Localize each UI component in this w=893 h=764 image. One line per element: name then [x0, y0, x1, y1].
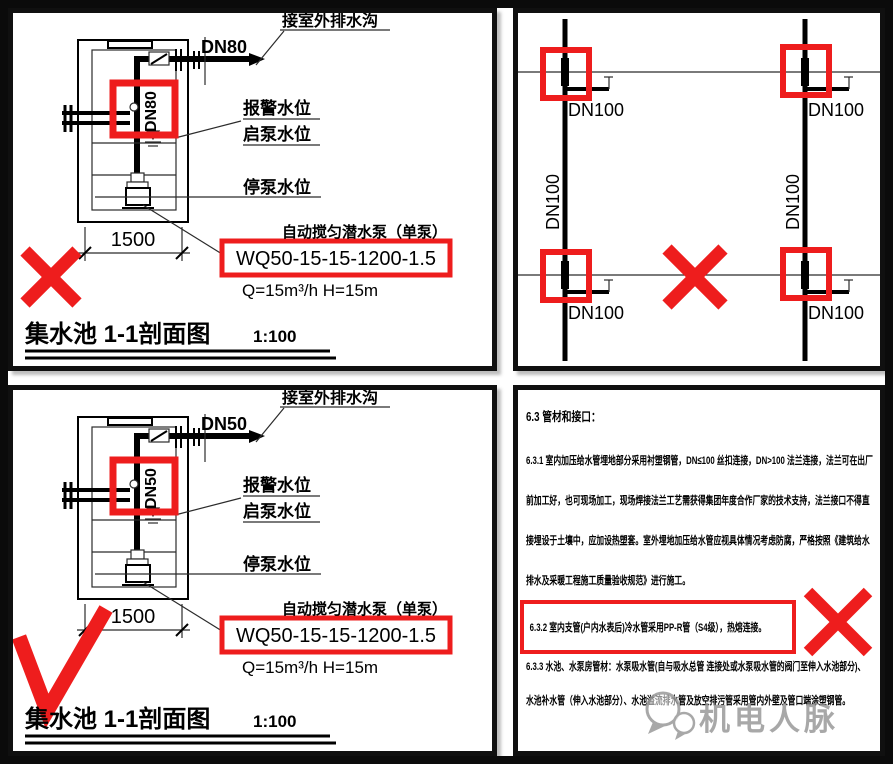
- panel-notes: 6.3 管材和接口： 6.3.1 室内加压给水管埋地部分采用衬塑钢管，DN≤10…: [513, 385, 885, 756]
- pipe-dn-label: DN80: [201, 37, 247, 57]
- highlight-box-note-632: 6.3.2 室内支管(户内水表后)冷水管采用PP-R管（S4级），热熔连接。: [520, 600, 796, 654]
- pump-caption: 自动搅匀潜水泵（单泵）: [282, 600, 447, 618]
- panel-section-dn80-wrong: 接室外排水沟 DN80 DN80 报警水位 启泵水位 停泵水位 自动搅匀潜水泵（…: [8, 8, 497, 371]
- dimension-value: 1500: [111, 229, 156, 251]
- drawing-title: 集水池 1-1剖面图: [24, 320, 210, 348]
- section-drawing-dn80: 接室外排水沟 DN80 DN80 报警水位 启泵水位 停泵水位 自动搅匀潜水泵（…: [13, 13, 492, 366]
- manhole-hatch: [108, 41, 152, 48]
- x-mark-icon: [800, 584, 876, 660]
- note-line-633a: 6.3.3 水池、水泵房管材：水泵吸水管(自与吸水总管 连接处或水泵吸水管的阀门…: [526, 658, 865, 674]
- dn100-label-top-left: DN100: [568, 100, 624, 120]
- watermark-text: 机电人脉: [699, 702, 839, 737]
- drain-label: 接室外排水沟: [282, 390, 378, 407]
- pump-duty: Q=15m³/h H=15m: [242, 658, 378, 677]
- stop-level-label: 停泵水位: [243, 177, 311, 197]
- plan-drawing-dn100: DN100 DN100 DN100 DN100 DN100 DN100: [518, 13, 880, 366]
- leader-levels: [175, 121, 241, 138]
- alarm-level-label: 报警水位: [243, 98, 311, 118]
- start-level-label: 启泵水位: [243, 124, 311, 144]
- check-mark-icon: [19, 609, 106, 711]
- x-mark-icon: [667, 249, 723, 305]
- start-level-label: 启泵水位: [243, 501, 311, 521]
- riser-dn-label: DN80: [143, 91, 160, 132]
- note-line-632: 6.3.2 室内支管(户内水表后)冷水管采用PP-R管（S4级），热熔连接。: [524, 619, 766, 635]
- manhole-hatch: [108, 418, 152, 425]
- note-line-631c: 接埋设于土壤中，应加设热塑套。室外埋地加压给水管应视具体情况考虑防腐，严格按照《…: [526, 532, 870, 548]
- pump-caption: 自动搅匀潜水泵（单泵）: [282, 223, 447, 241]
- panel-plan-dn100-wrong: DN100 DN100 DN100 DN100 DN100 DN100: [513, 8, 885, 371]
- note-line-631a: 6.3.1 室内加压给水管埋地部分采用衬塑钢管，DN≤100 丝扣连接，DN>1…: [526, 452, 873, 468]
- leader-drain: [256, 31, 284, 65]
- pipe-dn-label: DN50: [201, 414, 247, 434]
- note-line-631d: 排水及采暖工程施工质量验收规范》进行施工。: [526, 572, 690, 588]
- tank-linework: [25, 407, 390, 743]
- dn100-label-bottom-right: DN100: [808, 303, 864, 323]
- tank-linework: [25, 30, 390, 358]
- drawing-title: 集水池 1-1剖面图: [24, 705, 210, 733]
- pump-model: WQ50-15-15-1200-1.5: [236, 625, 436, 647]
- drawing-scale: 1:100: [253, 327, 296, 346]
- dn100-label-bottom-left: DN100: [568, 303, 624, 323]
- riser-dn-label: DN50: [143, 468, 160, 509]
- level-sensor: [130, 103, 138, 111]
- note-line-631b: 前加工好，也可现场加工，现场焊接法兰工艺需获得集团年度合作厂家的技术支持，法兰接…: [526, 492, 870, 508]
- dn100-label-top-right: DN100: [808, 100, 864, 120]
- stop-level-label: 停泵水位: [243, 554, 311, 574]
- pump-duty: Q=15m³/h H=15m: [242, 281, 378, 300]
- dn100-label-right-riser: DN100: [783, 174, 803, 230]
- figure-canvas: 接室外排水沟 DN80 DN80 报警水位 启泵水位 停泵水位 自动搅匀潜水泵（…: [0, 0, 893, 764]
- leader-levels: [175, 498, 241, 515]
- alarm-level-label: 报警水位: [243, 475, 311, 495]
- x-mark-icon: [25, 251, 77, 303]
- panel-section-dn50-correct: 接室外排水沟 DN50 DN50 报警水位 启泵水位 停泵水位 自动搅匀潜水泵（…: [8, 385, 497, 756]
- dn100-label-left-riser: DN100: [543, 174, 563, 230]
- section-drawing-dn50: 接室外排水沟 DN50 DN50 报警水位 启泵水位 停泵水位 自动搅匀潜水泵（…: [13, 390, 492, 751]
- dimension-value: 1500: [111, 606, 156, 628]
- speech-bubble-icon: [647, 693, 694, 740]
- drain-label: 接室外排水沟: [282, 13, 378, 30]
- watermark: 机电人脉: [633, 682, 883, 746]
- notes-heading: 6.3 管材和接口：: [526, 406, 601, 425]
- drawing-scale: 1:100: [253, 712, 296, 731]
- leader-drain: [256, 408, 284, 442]
- pump-model: WQ50-15-15-1200-1.5: [236, 248, 436, 270]
- level-sensor: [130, 480, 138, 488]
